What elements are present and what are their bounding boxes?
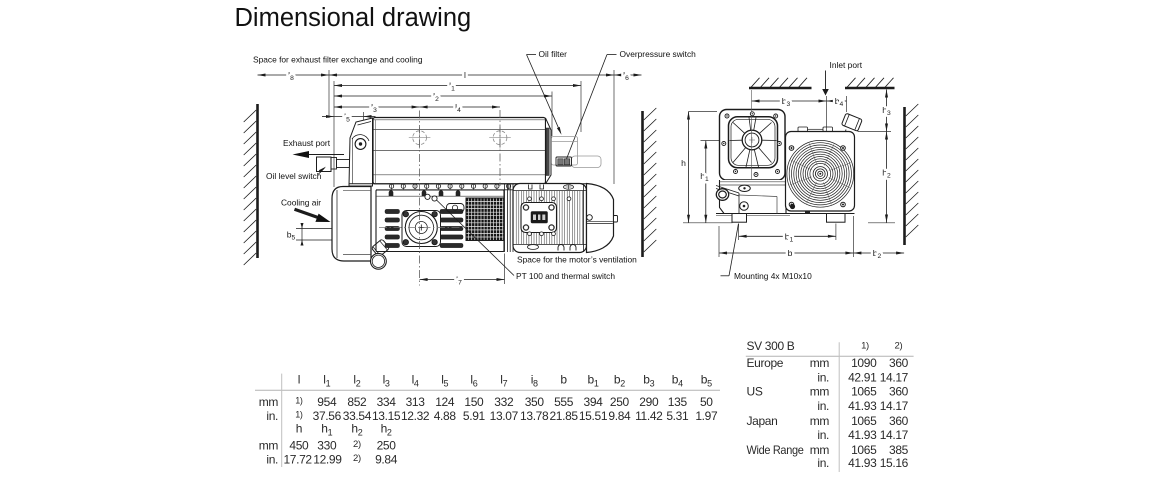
svg-text:41.93: 41.93 xyxy=(848,399,877,413)
svg-text:124: 124 xyxy=(435,395,455,409)
svg-text:5.31: 5.31 xyxy=(666,409,689,423)
svg-text:1065: 1065 xyxy=(851,414,877,428)
svg-text:450: 450 xyxy=(289,438,309,452)
svg-text:b: b xyxy=(788,248,793,258)
svg-text:mm: mm xyxy=(810,443,830,457)
svg-text:1): 1) xyxy=(861,340,869,351)
svg-text:Inlet port: Inlet port xyxy=(830,60,863,70)
svg-text:Overpressure switch: Overpressure switch xyxy=(620,49,697,59)
svg-text:Space for the motor’s ventilat: Space for the motor’s ventilation xyxy=(517,255,637,265)
svg-text:mm: mm xyxy=(259,395,279,409)
svg-text:150: 150 xyxy=(464,395,484,409)
svg-text:954: 954 xyxy=(317,395,337,409)
svg-text:394: 394 xyxy=(584,395,604,409)
svg-text:50: 50 xyxy=(700,395,713,409)
svg-text:2): 2) xyxy=(895,340,903,351)
svg-text:1): 1) xyxy=(295,396,303,406)
svg-text:h: h xyxy=(296,422,302,436)
svg-text:5.91: 5.91 xyxy=(463,409,486,423)
svg-text:42.91: 42.91 xyxy=(848,371,877,385)
svg-text:250: 250 xyxy=(610,395,630,409)
svg-text:350: 350 xyxy=(525,395,545,409)
svg-text:1.97: 1.97 xyxy=(695,409,718,423)
svg-text:mm: mm xyxy=(810,414,830,428)
svg-text:mm: mm xyxy=(810,356,830,370)
svg-text:in.: in. xyxy=(817,371,829,385)
svg-text:1): 1) xyxy=(295,410,303,420)
svg-text:21.85: 21.85 xyxy=(549,409,578,423)
svg-text:in.: in. xyxy=(817,399,829,413)
svg-text:Japan: Japan xyxy=(747,414,778,428)
svg-text:313: 313 xyxy=(406,395,426,409)
svg-text:1065: 1065 xyxy=(851,443,877,457)
svg-text:in.: in. xyxy=(817,428,829,442)
svg-text:330: 330 xyxy=(317,438,337,452)
svg-text:14.17: 14.17 xyxy=(880,399,909,413)
svg-text:Oil filter: Oil filter xyxy=(539,49,568,59)
svg-text:555: 555 xyxy=(554,395,574,409)
svg-text:PT 100 and thermal switch: PT 100 and thermal switch xyxy=(516,271,615,281)
svg-text:17.72: 17.72 xyxy=(283,452,312,466)
svg-text:US: US xyxy=(747,385,763,399)
svg-text:360: 360 xyxy=(889,385,909,399)
svg-text:Cooling air: Cooling air xyxy=(281,198,321,208)
svg-text:Europe: Europe xyxy=(747,356,784,370)
svg-text:12.32: 12.32 xyxy=(401,409,430,423)
svg-text:13.07: 13.07 xyxy=(490,409,519,423)
svg-text:9.84: 9.84 xyxy=(375,452,398,466)
svg-text:h: h xyxy=(681,158,686,168)
svg-text:12.99: 12.99 xyxy=(313,452,342,466)
svg-text:l: l xyxy=(464,70,466,80)
svg-text:332: 332 xyxy=(494,395,514,409)
svg-text:l: l xyxy=(298,373,300,387)
svg-text:14.17: 14.17 xyxy=(880,428,909,442)
svg-text:Wide Range: Wide Range xyxy=(747,443,805,457)
svg-text:135: 135 xyxy=(668,395,688,409)
svg-text:334: 334 xyxy=(377,395,397,409)
svg-text:250: 250 xyxy=(377,438,397,452)
svg-text:Dimensional drawing: Dimensional drawing xyxy=(235,4,472,32)
svg-text:1065: 1065 xyxy=(851,385,877,399)
svg-text:Exhaust port: Exhaust port xyxy=(283,138,331,148)
svg-text:360: 360 xyxy=(889,414,909,428)
svg-text:41.93: 41.93 xyxy=(848,428,877,442)
svg-text:15.16: 15.16 xyxy=(880,456,909,470)
svg-text:in.: in. xyxy=(266,452,278,466)
svg-text:1090: 1090 xyxy=(851,356,877,370)
svg-text:2): 2) xyxy=(353,439,361,450)
svg-text:360: 360 xyxy=(889,356,909,370)
svg-text:385: 385 xyxy=(889,443,909,457)
svg-text:in.: in. xyxy=(266,409,278,423)
svg-text:2): 2) xyxy=(353,453,361,464)
svg-text:mm: mm xyxy=(259,438,279,452)
svg-text:15.51: 15.51 xyxy=(579,409,608,423)
svg-text:14.17: 14.17 xyxy=(880,371,909,385)
svg-text:4.88: 4.88 xyxy=(434,409,457,423)
svg-text:Oil level switch: Oil level switch xyxy=(266,171,322,181)
svg-text:41.93: 41.93 xyxy=(848,456,877,470)
svg-text:SV 300 B: SV 300 B xyxy=(747,339,795,353)
svg-text:852: 852 xyxy=(347,395,367,409)
svg-text:11.42: 11.42 xyxy=(635,409,663,423)
svg-text:Mounting 4x M10x10: Mounting 4x M10x10 xyxy=(734,271,812,281)
svg-text:9.84: 9.84 xyxy=(608,409,631,423)
svg-text:13.78: 13.78 xyxy=(520,409,549,423)
svg-text:290: 290 xyxy=(639,395,659,409)
svg-text:mm: mm xyxy=(810,385,830,399)
svg-text:in.: in. xyxy=(817,456,829,470)
svg-text:b: b xyxy=(560,373,567,387)
svg-text:Space for exhaust filter excha: Space for exhaust filter exchange and co… xyxy=(253,55,423,65)
